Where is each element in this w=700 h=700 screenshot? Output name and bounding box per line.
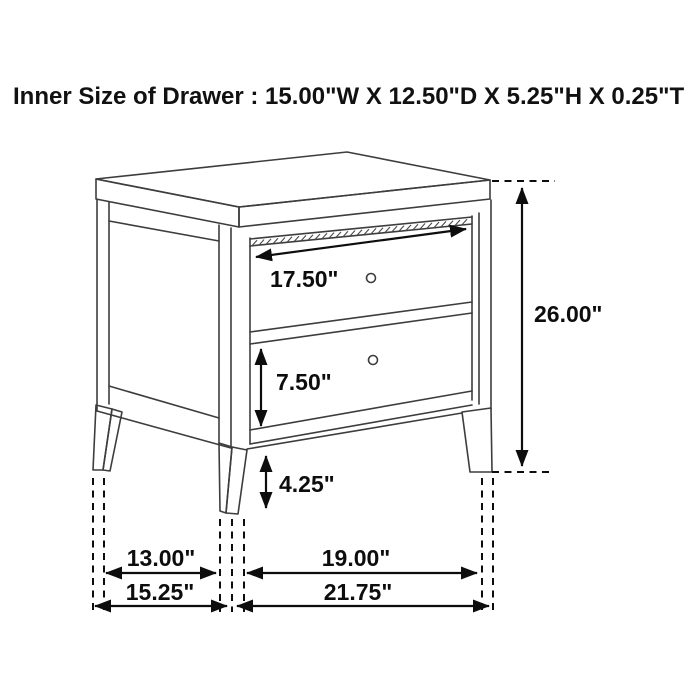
dim-overall-width: 21.75" bbox=[237, 579, 489, 606]
dim-width-between-legs: 19.00" bbox=[247, 545, 477, 573]
top-drawer-width-label: 17.50" bbox=[270, 266, 338, 292]
table-top bbox=[96, 152, 490, 227]
overall-width-label: 21.75" bbox=[324, 579, 392, 605]
leg-height-label: 4.25" bbox=[279, 471, 335, 497]
legs bbox=[93, 405, 492, 514]
dim-overall-height: 26.00" bbox=[522, 188, 602, 466]
bottom-drawer-knob bbox=[369, 356, 378, 365]
dim-leg-height: 4.25" bbox=[266, 456, 335, 508]
overall-height-label: 26.00" bbox=[534, 301, 602, 327]
top-drawer-knob bbox=[367, 274, 376, 283]
nightstand-drawing bbox=[93, 152, 492, 514]
overall-depth-label: 15.25" bbox=[126, 579, 194, 605]
width-between-legs-label: 19.00" bbox=[322, 545, 390, 571]
dim-top-drawer-width: 17.50" bbox=[256, 229, 466, 292]
nightstand-dimension-diagram: 17.50" 26.00" 7.50" 4.25" 13.00" 19.00" … bbox=[0, 0, 700, 700]
dimension-callouts: 17.50" 26.00" 7.50" 4.25" 13.00" 19.00" … bbox=[95, 188, 602, 606]
dim-depth-between-legs: 13.00" bbox=[106, 545, 216, 573]
front-right-leg bbox=[462, 408, 492, 472]
bottom-drawer-height-label: 7.50" bbox=[276, 369, 332, 395]
front-left-leg bbox=[219, 443, 232, 513]
dim-overall-depth: 15.25" bbox=[95, 579, 227, 606]
front-frame bbox=[247, 200, 491, 449]
dim-bottom-drawer-height: 7.50" bbox=[261, 349, 332, 426]
depth-between-legs-label: 13.00" bbox=[127, 545, 195, 571]
